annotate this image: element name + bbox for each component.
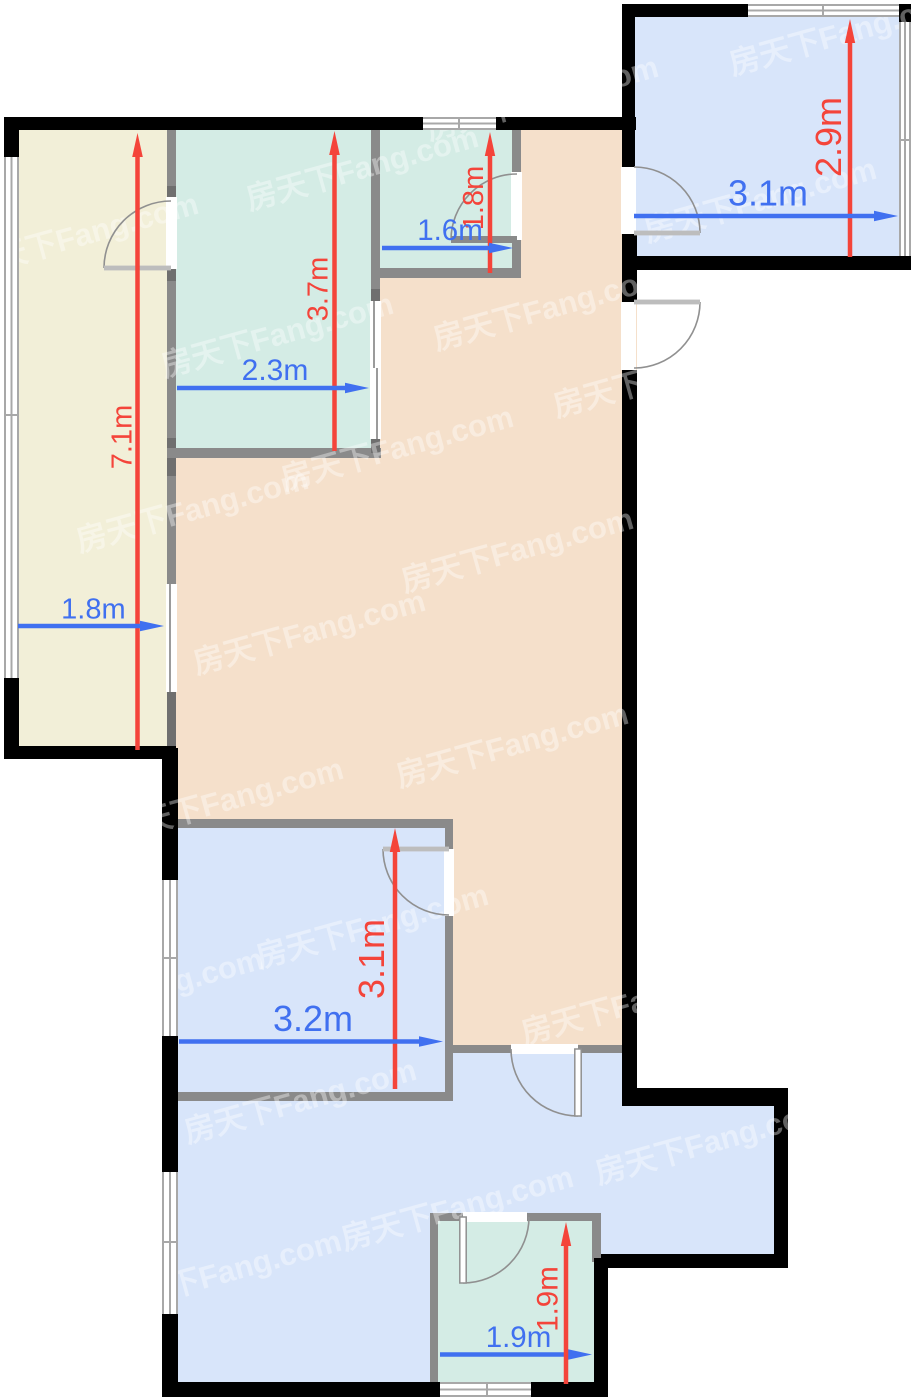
svg-text:2.3m: 2.3m — [242, 354, 309, 387]
svg-text:3.1m: 3.1m — [728, 173, 808, 214]
svg-text:3.2m: 3.2m — [273, 998, 353, 1039]
svg-text:1.8m: 1.8m — [61, 594, 125, 626]
svg-text:3.1m: 3.1m — [351, 919, 392, 999]
svg-text:2.9m: 2.9m — [808, 97, 849, 177]
svg-text:1.9m: 1.9m — [532, 1266, 565, 1332]
svg-text:3.7m: 3.7m — [303, 257, 335, 321]
svg-text:1.6m: 1.6m — [417, 214, 483, 247]
svg-text:7.1m: 7.1m — [107, 405, 139, 469]
